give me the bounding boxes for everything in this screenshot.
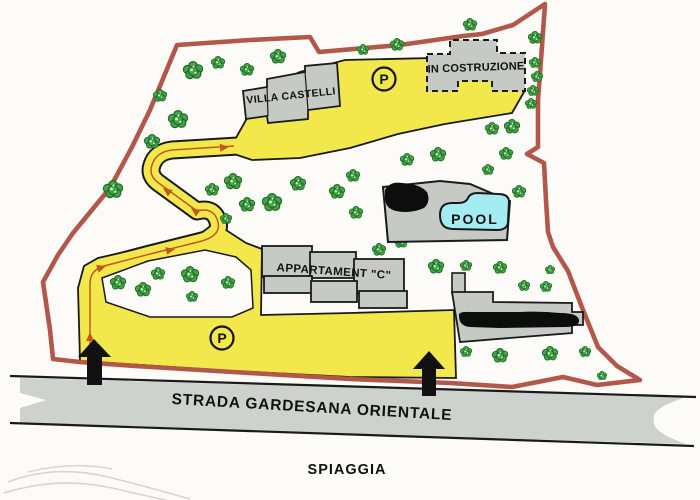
- pool-label: POOL: [451, 211, 499, 227]
- parking-letter: P: [217, 330, 226, 346]
- site-plan-canvas: VILLA CASTELLI IN COSTRUZIONE POOL APPAR…: [0, 0, 700, 500]
- parking-letter: P: [379, 71, 388, 87]
- site-plan-map: VILLA CASTELLI IN COSTRUZIONE POOL APPAR…: [0, 0, 700, 500]
- beach-label: SPIAGGIA: [308, 462, 387, 478]
- lakeside-building-stub: [452, 273, 465, 293]
- building-redaction-blob: [459, 312, 579, 328]
